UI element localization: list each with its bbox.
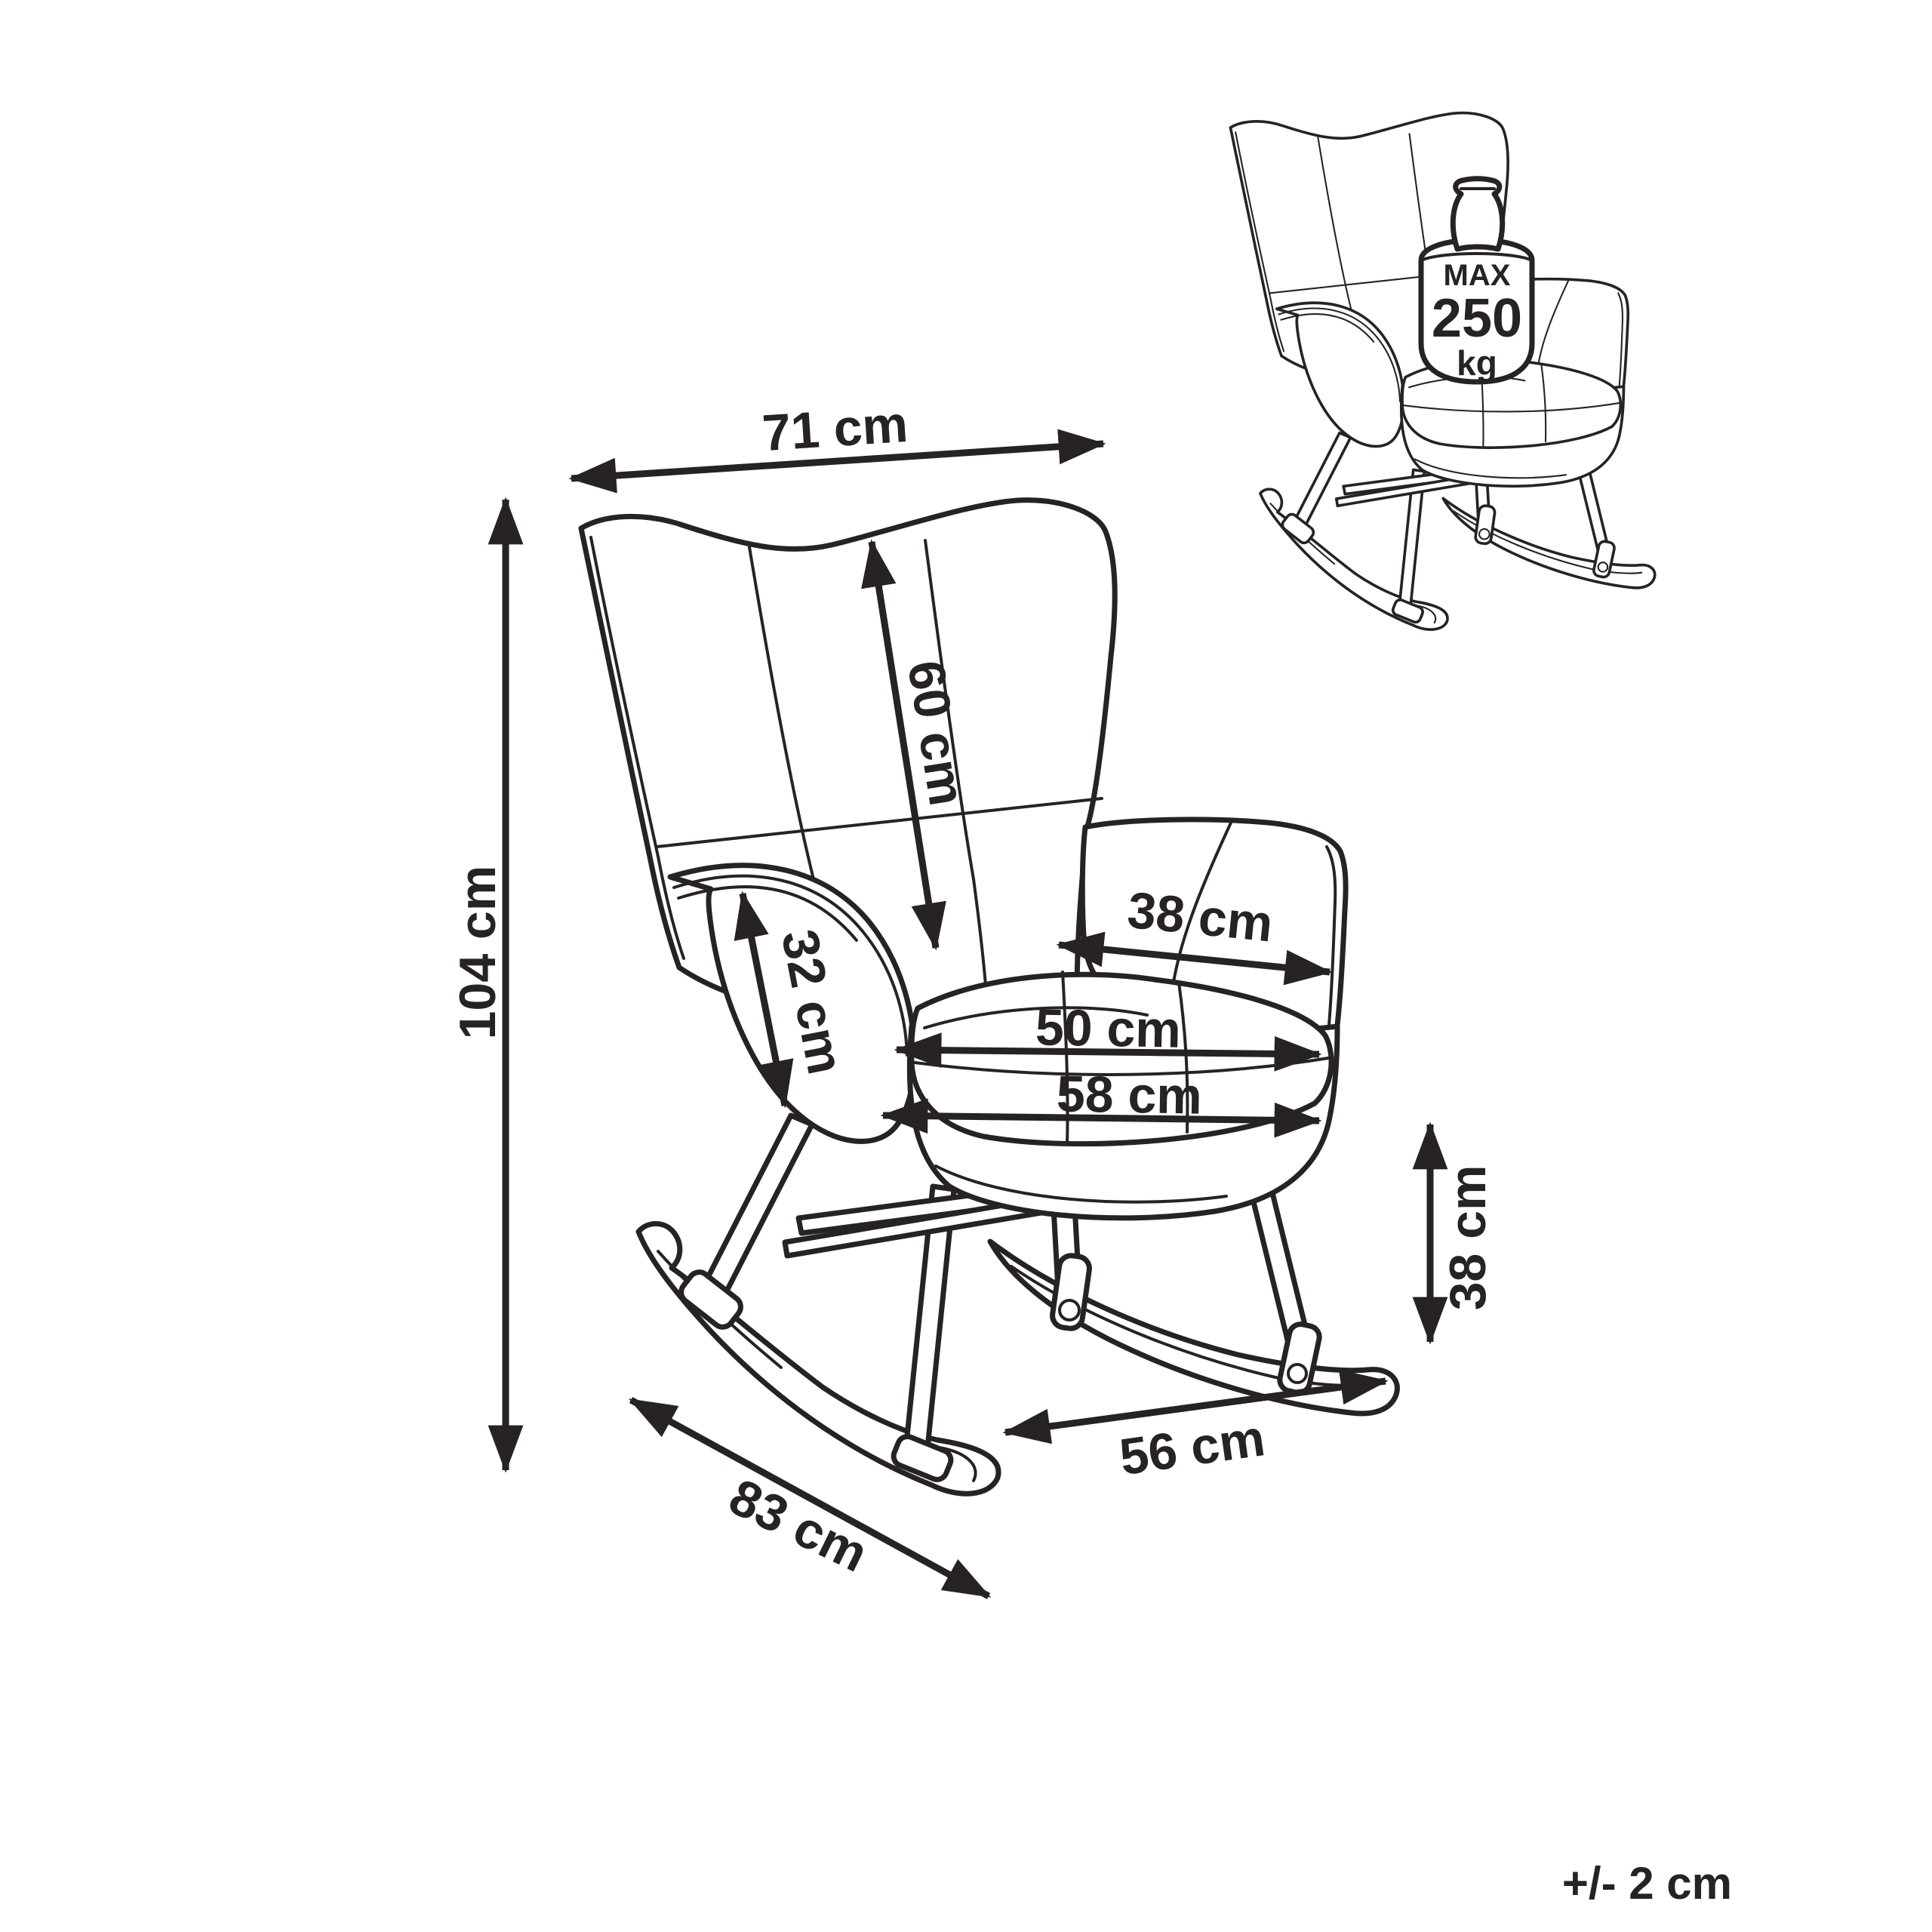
dim-label-seat-height: 38 cm (1439, 1165, 1497, 1311)
diagram-page: MAX 250 kg 71 cm 104 cm 60 cm 32 cm 38 c… (0, 0, 1932, 1932)
dim-rocker-length: 83 cm (631, 1400, 989, 1596)
dim-label-rocker-length: 83 cm (721, 1468, 877, 1583)
dim-seat-height: 38 cm (1430, 1124, 1497, 1342)
rocking-chair-dimension-diagram: MAX 250 kg 71 cm 104 cm 60 cm 32 cm 38 c… (0, 0, 1932, 1932)
max-load-line2: 250 (1432, 288, 1522, 349)
tolerance-note: +/- 2 cm (1562, 1858, 1732, 1909)
dim-label-rocker-rear-span: 56 cm (1116, 1409, 1269, 1486)
dim-overall-height: 104 cm (449, 500, 506, 1470)
dim-label-overall-width: 71 cm (761, 395, 909, 462)
max-load-line1: MAX (1444, 259, 1511, 292)
dim-overall-width: 71 cm (571, 395, 1103, 478)
dim-arrow-rocker-length (631, 1400, 989, 1596)
max-load-line3: kg (1457, 343, 1497, 383)
dim-label-seat-width: 50 cm (1035, 998, 1181, 1058)
dim-label-overall-height: 104 cm (449, 866, 506, 1040)
dim-label-seat-outer-width: 58 cm (1056, 1065, 1202, 1124)
main-chair-drawing (581, 500, 1397, 1494)
